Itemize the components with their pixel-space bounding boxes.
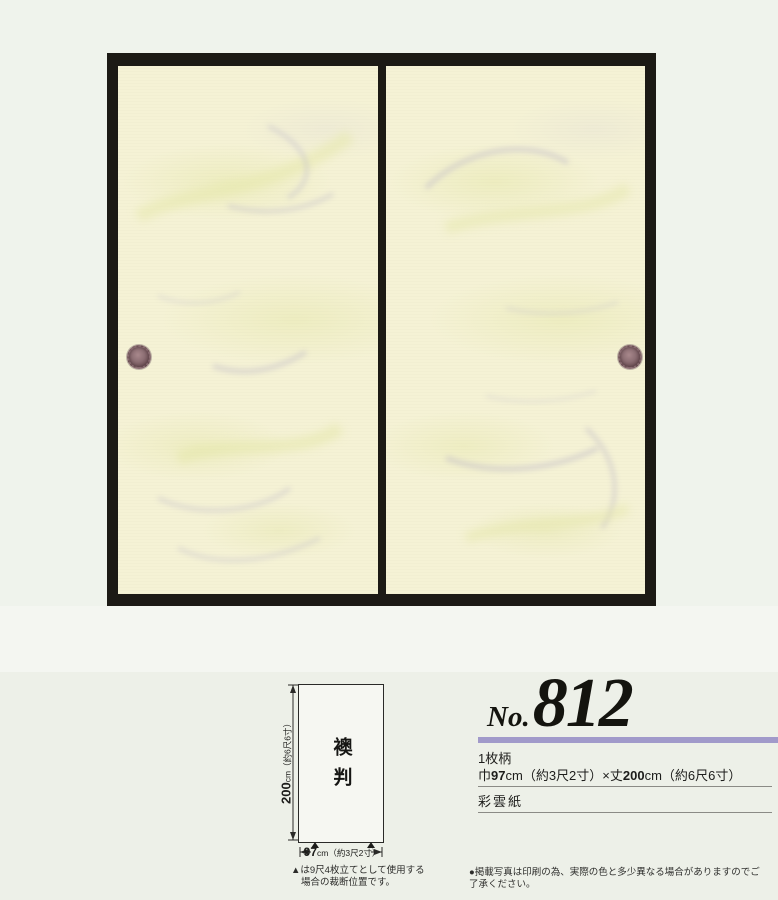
- diagram-height-dimension: 200cm（約6尺6寸）: [279, 697, 294, 827]
- panel-divider: [378, 66, 386, 594]
- door-handle-icon: [618, 345, 642, 369]
- cut-position-note: ▲は9尺4枚立てとして使用する 場合の裁断位置です。: [291, 865, 425, 888]
- size-width-value: 97: [491, 768, 505, 783]
- fusuma-photo: [107, 53, 656, 606]
- product-size: 巾97cm（約3尺2寸）×丈200cm（約6尺6寸）: [478, 765, 741, 784]
- size-width-suffix: cm（約3尺2寸）×丈: [505, 768, 622, 783]
- accent-bar: [478, 737, 778, 743]
- size-height-suffix: cm（約6尺6寸）: [645, 768, 742, 783]
- paper-name: 彩雲紙: [478, 791, 523, 810]
- size-height-value: 200: [623, 768, 645, 783]
- height-suffix: cm（約6尺6寸）: [283, 719, 293, 782]
- size-width-label: 巾: [478, 768, 491, 783]
- product-number: No. 812: [487, 676, 632, 734]
- door-handle-icon: [127, 345, 151, 369]
- background-band-mid: [0, 606, 778, 672]
- width-value: 97: [304, 845, 317, 859]
- divider-rule-top: [478, 786, 772, 787]
- height-value: 200: [279, 782, 294, 804]
- marble-pattern-left: [118, 66, 378, 594]
- fusuma-panel-left: [118, 66, 378, 594]
- marble-pattern-right: [386, 66, 645, 594]
- fusuma-panel-right: [386, 66, 645, 594]
- photo-disclaimer-note: ●掲載写真は印刷の為、実際の色と多少異なる場合がありますのでご了承ください。: [469, 867, 769, 891]
- cut-note-line1: ▲は9尺4枚立てとして使用する: [291, 865, 425, 877]
- width-suffix: cm（約3尺2寸）: [317, 848, 380, 858]
- cut-note-line2: 場合の裁断位置です。: [301, 877, 425, 889]
- diagram-width-dimension: 97cm（約3尺2寸）: [303, 845, 381, 859]
- product-number-value: 812: [533, 676, 632, 732]
- product-number-prefix: No.: [487, 701, 530, 734]
- divider-rule-bottom: [478, 812, 772, 813]
